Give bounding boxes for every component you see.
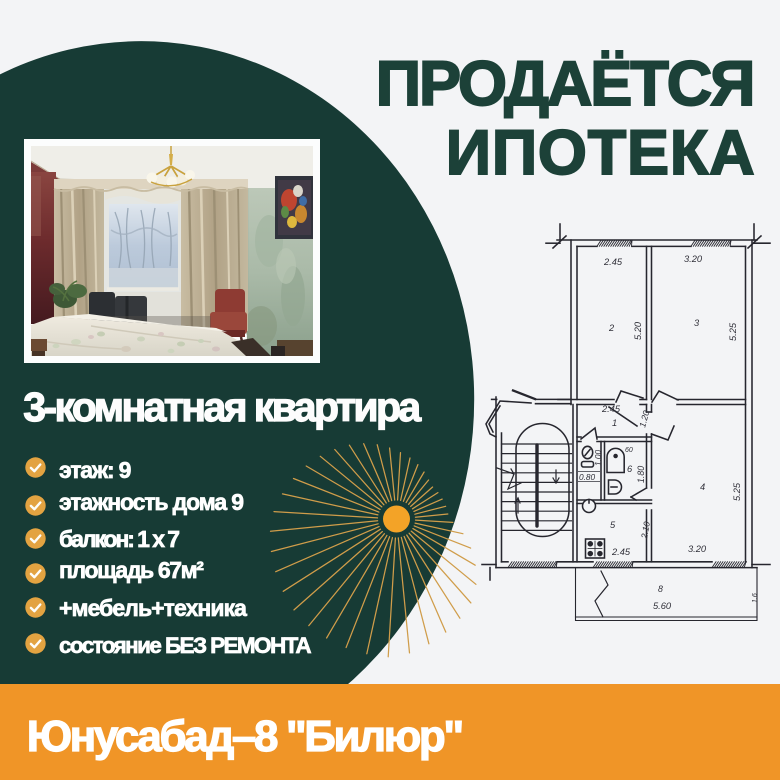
- svg-text:2.45: 2.45: [601, 404, 621, 414]
- svg-text:1.80: 1.80: [636, 466, 646, 483]
- svg-text:4: 4: [700, 482, 705, 492]
- svg-text:2.10: 2.10: [639, 521, 652, 541]
- svg-text:5: 5: [610, 520, 616, 530]
- svg-text:0.80: 0.80: [579, 472, 596, 482]
- svg-text:1: 1: [612, 418, 617, 428]
- svg-text:1.20: 1.20: [637, 409, 651, 428]
- svg-text:6: 6: [627, 464, 633, 474]
- svg-text:5.20: 5.20: [633, 321, 643, 340]
- svg-text:3.20: 3.20: [688, 544, 707, 554]
- svg-text:3: 3: [694, 318, 700, 328]
- svg-text:5.60: 5.60: [653, 601, 672, 611]
- svg-text:2.45: 2.45: [603, 257, 623, 267]
- svg-text:3.20: 3.20: [684, 254, 703, 264]
- svg-text:1.00: 1.00: [593, 449, 603, 466]
- svg-text:2.45: 2.45: [611, 547, 631, 557]
- svg-text:1.6: 1.6: [752, 593, 759, 603]
- svg-text:2: 2: [608, 323, 615, 333]
- svg-text:60: 60: [625, 447, 633, 454]
- svg-text:8: 8: [658, 584, 663, 594]
- svg-text:5.25: 5.25: [732, 482, 742, 501]
- svg-text:5.25: 5.25: [728, 322, 738, 341]
